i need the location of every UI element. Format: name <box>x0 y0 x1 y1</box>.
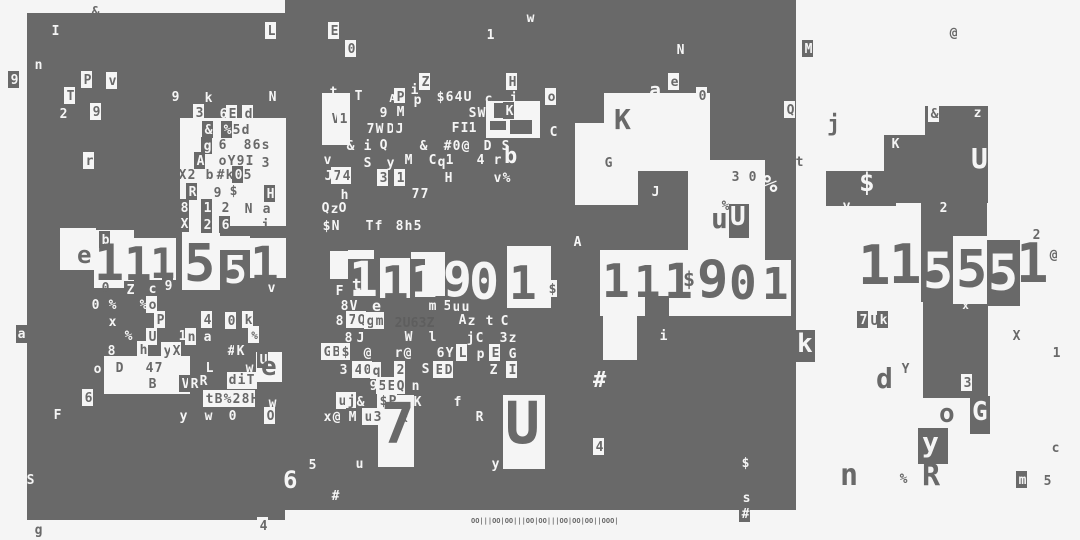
captcha-glyph: 1 <box>762 264 789 306</box>
noise-char: T <box>354 89 363 104</box>
noise-char: U <box>463 90 472 105</box>
noise-char: t <box>485 314 494 329</box>
noise-char: 5 <box>1043 474 1052 489</box>
noise-char: T <box>365 219 374 234</box>
noise-char: L <box>458 346 467 361</box>
noise-char: v <box>108 74 117 89</box>
noise-char: W <box>477 106 486 121</box>
noise-char: @ <box>332 410 341 425</box>
noise-char: 5 <box>232 123 241 138</box>
captcha-glyph: U <box>505 396 540 451</box>
noise-char: r <box>85 154 94 169</box>
noise-char: C <box>428 153 437 168</box>
noise-char: S <box>468 106 477 121</box>
noise-char: 6 <box>221 218 230 233</box>
noise-char: m <box>375 314 384 329</box>
noise-char: X <box>178 168 187 183</box>
noise-char: & <box>346 139 355 154</box>
noise-char: @ <box>403 346 412 361</box>
noise-char: h <box>404 219 413 234</box>
noise-char: T <box>246 373 255 388</box>
noise-char: Q <box>321 201 330 216</box>
noise-char: 0 <box>748 170 757 185</box>
noise-char: k <box>204 91 213 106</box>
noise-char: G <box>508 347 517 362</box>
noise-char: 1 <box>203 201 212 216</box>
captcha-glyph: j <box>827 115 840 136</box>
noise-char: f <box>374 219 383 234</box>
noise-char: 2 <box>59 107 68 122</box>
noise-char: o <box>218 154 227 169</box>
noise-char: 9 <box>10 73 19 88</box>
noise-char: Q <box>379 138 388 153</box>
noise-char: M <box>396 105 405 120</box>
noise-char: X <box>1012 329 1021 344</box>
noise-char: 7 <box>154 361 163 376</box>
noise-char: 2 <box>939 201 948 216</box>
noise-char: x <box>108 315 117 330</box>
noise-char: I <box>51 24 60 39</box>
noise-char: t <box>205 392 214 407</box>
noise-char: k <box>879 313 888 328</box>
noise-char: U <box>148 330 157 345</box>
noise-char: 1 <box>445 153 454 168</box>
noise-char: H <box>508 75 517 90</box>
noise-char: c <box>484 92 493 107</box>
captcha-glyph: e <box>77 244 91 267</box>
dark-overlay <box>510 120 532 134</box>
noise-char: M <box>404 153 413 168</box>
noise-char: w <box>204 409 213 424</box>
noise-char: K <box>236 344 245 359</box>
noise-char: h <box>139 343 148 358</box>
noise-char: 4 <box>259 519 268 534</box>
noise-char: 2 <box>203 218 212 233</box>
noise-char: 6 <box>252 138 261 153</box>
noise-char: F <box>335 284 344 299</box>
noise-char: E <box>330 24 339 39</box>
noise-char: % <box>223 392 232 407</box>
noise-char: r <box>394 346 403 361</box>
noise-char: X <box>172 344 181 359</box>
noise-char: 1 <box>1052 346 1061 361</box>
noise-char: 6 <box>218 138 227 153</box>
noise-char: 1 <box>339 112 348 127</box>
noise-char: # <box>741 507 750 522</box>
light-patch <box>575 123 605 205</box>
noise-char: $ <box>341 345 350 360</box>
noise-char: j <box>466 331 475 346</box>
noise-char: v <box>493 171 502 186</box>
noise-char: i <box>261 218 270 233</box>
noise-char: s <box>261 138 270 153</box>
captcha-glyph: 0 <box>469 259 499 307</box>
captcha-glyph: d <box>876 366 893 393</box>
captcha-glyph: y <box>922 430 939 457</box>
light-patch <box>604 171 638 205</box>
captcha-glyph: # <box>593 371 606 392</box>
noise-char: 3 <box>731 170 740 185</box>
noise-char: z <box>467 314 476 329</box>
noise-char: 4 <box>203 313 212 328</box>
noise-char: 8 <box>107 344 116 359</box>
noise-char: i <box>363 139 372 154</box>
captcha-glyph: 6 <box>283 469 297 492</box>
noise-char: 8 <box>241 392 250 407</box>
noise-char: 8 <box>243 138 252 153</box>
captcha-glyph: 5 <box>956 246 987 295</box>
noise-char: J <box>651 185 660 200</box>
noise-char: B <box>214 392 223 407</box>
noise-char: 2 <box>396 363 405 378</box>
captcha-glyph: 5 <box>224 252 247 288</box>
captcha-glyph: 9 <box>697 256 728 305</box>
noise-char: B <box>148 377 157 392</box>
noise-char: 3 <box>261 156 270 171</box>
noise-char: K <box>891 137 900 152</box>
noise-char: W <box>375 122 384 137</box>
noise-char: Y <box>445 346 454 361</box>
barcode-line: OO|||OO|OO|||OO|OO|||OO|OO|OO||OOO| <box>471 516 619 526</box>
noise-char: 4 <box>476 153 485 168</box>
captcha-glyph: 5 <box>988 250 1018 298</box>
noise-char: $ <box>229 184 238 199</box>
noise-char: y <box>491 457 500 472</box>
noise-char: # <box>331 489 340 504</box>
noise-char: & <box>204 123 213 138</box>
noise-char: T <box>66 89 75 104</box>
noise-char: 6 <box>445 90 454 105</box>
noise-char: N <box>244 202 253 217</box>
noise-char: A <box>196 154 205 169</box>
captcha-glyph: $ <box>683 270 695 289</box>
noise-char: m <box>1018 473 1027 488</box>
noise-char: @ <box>363 346 372 361</box>
noise-char: H <box>250 392 259 407</box>
noise-char: O <box>338 201 347 216</box>
captcha-glyph: e <box>261 355 277 380</box>
noise-char: D <box>115 361 124 376</box>
captcha-glyph: K <box>614 107 631 134</box>
noise-char: z <box>508 331 517 346</box>
captcha-glyph: k <box>797 332 813 357</box>
noise-char: G <box>604 156 613 171</box>
noise-char: C <box>475 331 484 346</box>
noise-char: M <box>804 42 813 57</box>
noise-char: Z <box>489 363 498 378</box>
captcha-glyph: $ <box>859 171 875 196</box>
noise-char: s <box>742 491 751 506</box>
noise-char: 8 <box>395 219 404 234</box>
noise-char: 1 <box>396 171 405 186</box>
noise-char: & <box>91 5 100 20</box>
noise-char: N <box>331 219 340 234</box>
noise-char: 2 <box>232 392 241 407</box>
noise-char: r <box>493 153 502 168</box>
noise-char: R <box>188 185 197 200</box>
noise-char: y <box>179 409 188 424</box>
captcha-glyph: 1 <box>858 240 891 291</box>
noise-char: % <box>124 329 133 344</box>
noise-char: d <box>241 123 250 138</box>
dark-overlay <box>490 121 506 130</box>
noise-char: W <box>404 330 413 345</box>
noise-char: 0 <box>228 409 237 424</box>
noise-char: p <box>476 347 485 362</box>
captcha-glyph: 1 <box>381 262 409 306</box>
noise-char: E <box>228 107 237 122</box>
light-patch <box>603 308 637 360</box>
noise-char: L <box>267 24 276 39</box>
noise-char: & <box>930 107 939 122</box>
noise-char: @ <box>1049 248 1058 263</box>
noise-char: f <box>453 395 462 410</box>
captcha-glyph: U <box>730 205 746 230</box>
noise-char: 7 <box>859 313 868 328</box>
captcha-glyph: t <box>352 277 362 292</box>
noise-char: C <box>549 125 558 140</box>
noise-char: a <box>17 327 26 342</box>
noise-char: $ <box>436 90 445 105</box>
noise-char: 3 <box>339 363 348 378</box>
noise-char: R <box>190 377 199 392</box>
noise-char: S <box>421 362 430 377</box>
captcha-glyph: R <box>922 462 940 491</box>
captcha-glyph: 1 <box>250 243 279 289</box>
noise-char: 0 <box>452 139 461 154</box>
noise-char: d <box>228 373 237 388</box>
noise-char: i <box>659 329 668 344</box>
noise-char: 1 <box>468 121 477 136</box>
noise-char: N <box>676 43 685 58</box>
noise-char: 0 <box>234 168 243 183</box>
noise-char: 4 <box>145 361 154 376</box>
noise-char: S <box>26 473 35 488</box>
captcha-glyph: a <box>649 81 661 100</box>
noise-char: 5 <box>413 219 422 234</box>
captcha-glyph: 1 <box>124 243 152 287</box>
noise-char: 3 <box>195 106 204 121</box>
noise-char: 3 <box>963 376 972 391</box>
noise-char: c <box>1051 441 1060 456</box>
noise-char: 0 <box>347 42 356 57</box>
noise-char: F <box>451 121 460 136</box>
noise-char: 5 <box>308 458 317 473</box>
noise-char: Q <box>786 103 795 118</box>
noise-char: 3 <box>499 331 508 346</box>
captcha-glyph: 7 <box>381 398 415 451</box>
noise-char: H <box>444 171 453 186</box>
noise-char: O <box>266 409 275 424</box>
noise-char: a <box>262 202 271 217</box>
noise-char: y <box>842 199 851 214</box>
noise-char: $ <box>548 282 557 297</box>
noise-char: N <box>268 90 277 105</box>
noise-char: $ <box>741 456 750 471</box>
noise-char: 8 <box>180 201 189 216</box>
noise-char: 2 <box>221 201 230 216</box>
noise-char: u <box>355 457 364 472</box>
dark-block <box>923 298 988 398</box>
noise-char: 9 <box>213 186 222 201</box>
captcha-canvas: OO|||OO|OO|||OO|OO|||OO|OO|OO||OOO| &In9… <box>0 0 1080 540</box>
captcha-glyph: % <box>763 173 777 196</box>
noise-char: D <box>444 363 453 378</box>
noise-char: Z <box>426 316 435 331</box>
noise-char: v <box>323 153 332 168</box>
noise-char: A <box>458 313 467 328</box>
noise-char: 4 <box>454 90 463 105</box>
captcha-glyph: 0 <box>729 262 757 306</box>
noise-char: d <box>244 107 253 122</box>
noise-char: J <box>356 331 365 346</box>
noise-char: x <box>323 410 332 425</box>
noise-char: 7 <box>420 187 429 202</box>
noise-char: 0 <box>91 298 100 313</box>
captcha-glyph: 5 <box>184 240 215 289</box>
captcha-glyph: 1 <box>94 240 124 288</box>
noise-char: o <box>93 362 102 377</box>
captcha-glyph: 1 <box>411 262 438 304</box>
noise-char: @ <box>949 26 958 41</box>
noise-char: i <box>237 373 246 388</box>
captcha-glyph: 1 <box>150 244 175 284</box>
noise-char: 6 <box>436 346 445 361</box>
noise-char: % <box>250 328 259 343</box>
captcha-glyph: 1 <box>1016 238 1049 289</box>
noise-char: 4 <box>342 169 351 184</box>
captcha-glyph: 1 <box>509 262 537 306</box>
noise-char: 9 <box>171 90 180 105</box>
noise-char: % <box>899 472 908 487</box>
noise-char: 2 <box>187 168 196 183</box>
noise-char: S <box>363 156 372 171</box>
noise-char: 6 <box>84 391 93 406</box>
noise-char: 0 <box>227 314 236 329</box>
noise-char: t <box>795 155 804 170</box>
captcha-glyph: 1 <box>634 262 661 304</box>
captcha-glyph: 5 <box>923 248 953 296</box>
noise-char: P <box>83 73 92 88</box>
noise-char: 9 <box>379 106 388 121</box>
noise-char: J <box>395 122 404 137</box>
noise-char: 7 <box>366 122 375 137</box>
captcha-glyph: u <box>711 206 728 233</box>
captcha-glyph: G <box>972 400 988 425</box>
noise-char: g <box>34 523 43 538</box>
noise-char: E <box>491 346 500 361</box>
light-patch <box>330 251 348 279</box>
noise-char: & <box>419 139 428 154</box>
captcha-glyph: 1 <box>889 239 922 290</box>
noise-char: C <box>500 314 509 329</box>
noise-char: Y <box>901 362 910 377</box>
noise-char: l <box>428 330 437 345</box>
captcha-glyph: U <box>971 146 988 173</box>
noise-char: I <box>245 154 254 169</box>
noise-char: n <box>34 58 43 73</box>
noise-char: x <box>961 298 970 313</box>
noise-char: z <box>973 106 982 121</box>
noise-char: 7 <box>411 187 420 202</box>
noise-char: M <box>348 410 357 425</box>
noise-char: # <box>443 139 452 154</box>
noise-char: w <box>526 11 535 26</box>
noise-char: o <box>547 90 556 105</box>
noise-char: 3 <box>379 171 388 186</box>
noise-char: 9 <box>92 105 101 120</box>
noise-char: R <box>199 374 208 389</box>
noise-char: H <box>266 187 275 202</box>
noise-char: p <box>413 93 422 108</box>
noise-char: R <box>475 410 484 425</box>
noise-char: n <box>187 330 196 345</box>
noise-char: 4 <box>595 440 604 455</box>
captcha-glyph: 9 <box>443 258 472 304</box>
noise-char: 5 <box>243 168 252 183</box>
noise-char: 8 <box>335 314 344 329</box>
noise-char: % <box>223 123 232 138</box>
noise-char: e <box>670 75 679 90</box>
noise-char: F <box>53 408 62 423</box>
noise-char: P <box>156 313 165 328</box>
captcha-glyph: o <box>939 402 955 427</box>
noise-char: @ <box>461 139 470 154</box>
noise-char: j <box>347 394 356 409</box>
noise-char: % <box>502 171 511 186</box>
captcha-glyph: 1 <box>602 260 630 304</box>
noise-char: Z <box>421 75 430 90</box>
noise-char: 1 <box>486 28 495 43</box>
noise-char: % <box>108 298 117 313</box>
noise-char: I <box>508 363 517 378</box>
noise-char: $ <box>322 219 331 234</box>
noise-char: A <box>573 235 582 250</box>
noise-char: a <box>203 330 212 345</box>
captcha-glyph: n <box>840 462 858 491</box>
noise-char: # <box>216 168 225 183</box>
captcha-glyph: b <box>504 147 517 168</box>
noise-char: 0 <box>698 89 707 104</box>
noise-char: b <box>205 168 214 183</box>
noise-char: K <box>505 104 514 119</box>
noise-char: X <box>180 217 189 232</box>
